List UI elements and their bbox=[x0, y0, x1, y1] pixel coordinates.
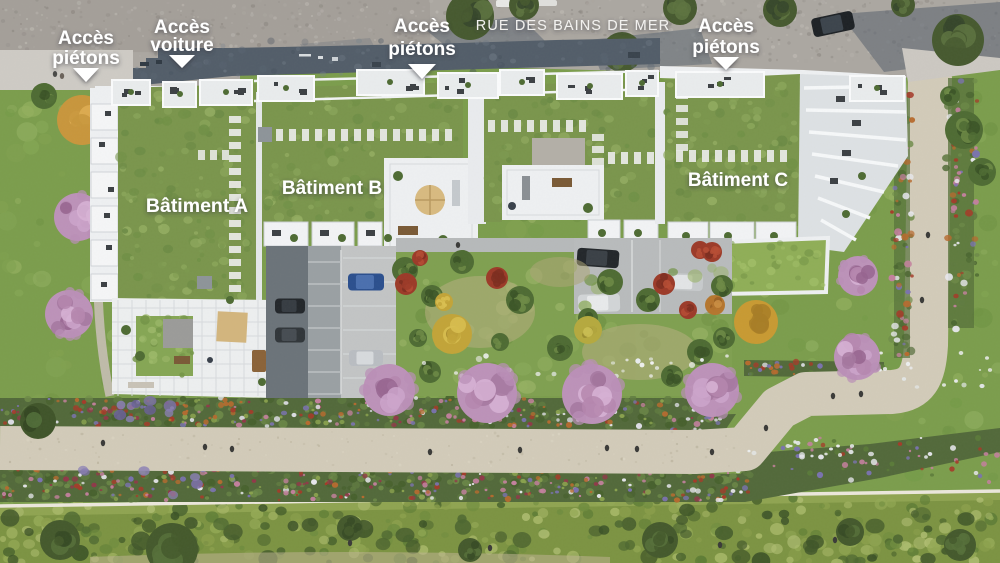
svg-text:Accès: Accès bbox=[58, 28, 114, 49]
svg-text:Accès: Accès bbox=[698, 16, 754, 37]
svg-text:Bâtiment A: Bâtiment A bbox=[146, 195, 248, 217]
svg-text:piétons: piétons bbox=[52, 48, 120, 69]
svg-text:piétons: piétons bbox=[388, 39, 456, 60]
svg-text:Accès: Accès bbox=[394, 16, 450, 37]
svg-text:voiture: voiture bbox=[150, 35, 213, 56]
svg-text:RUE DES BAINS DE MER: RUE DES BAINS DE MER bbox=[476, 18, 670, 34]
svg-text:Bâtiment C: Bâtiment C bbox=[688, 170, 789, 191]
svg-text:piétons: piétons bbox=[692, 37, 760, 58]
svg-text:Bâtiment B: Bâtiment B bbox=[282, 178, 382, 199]
